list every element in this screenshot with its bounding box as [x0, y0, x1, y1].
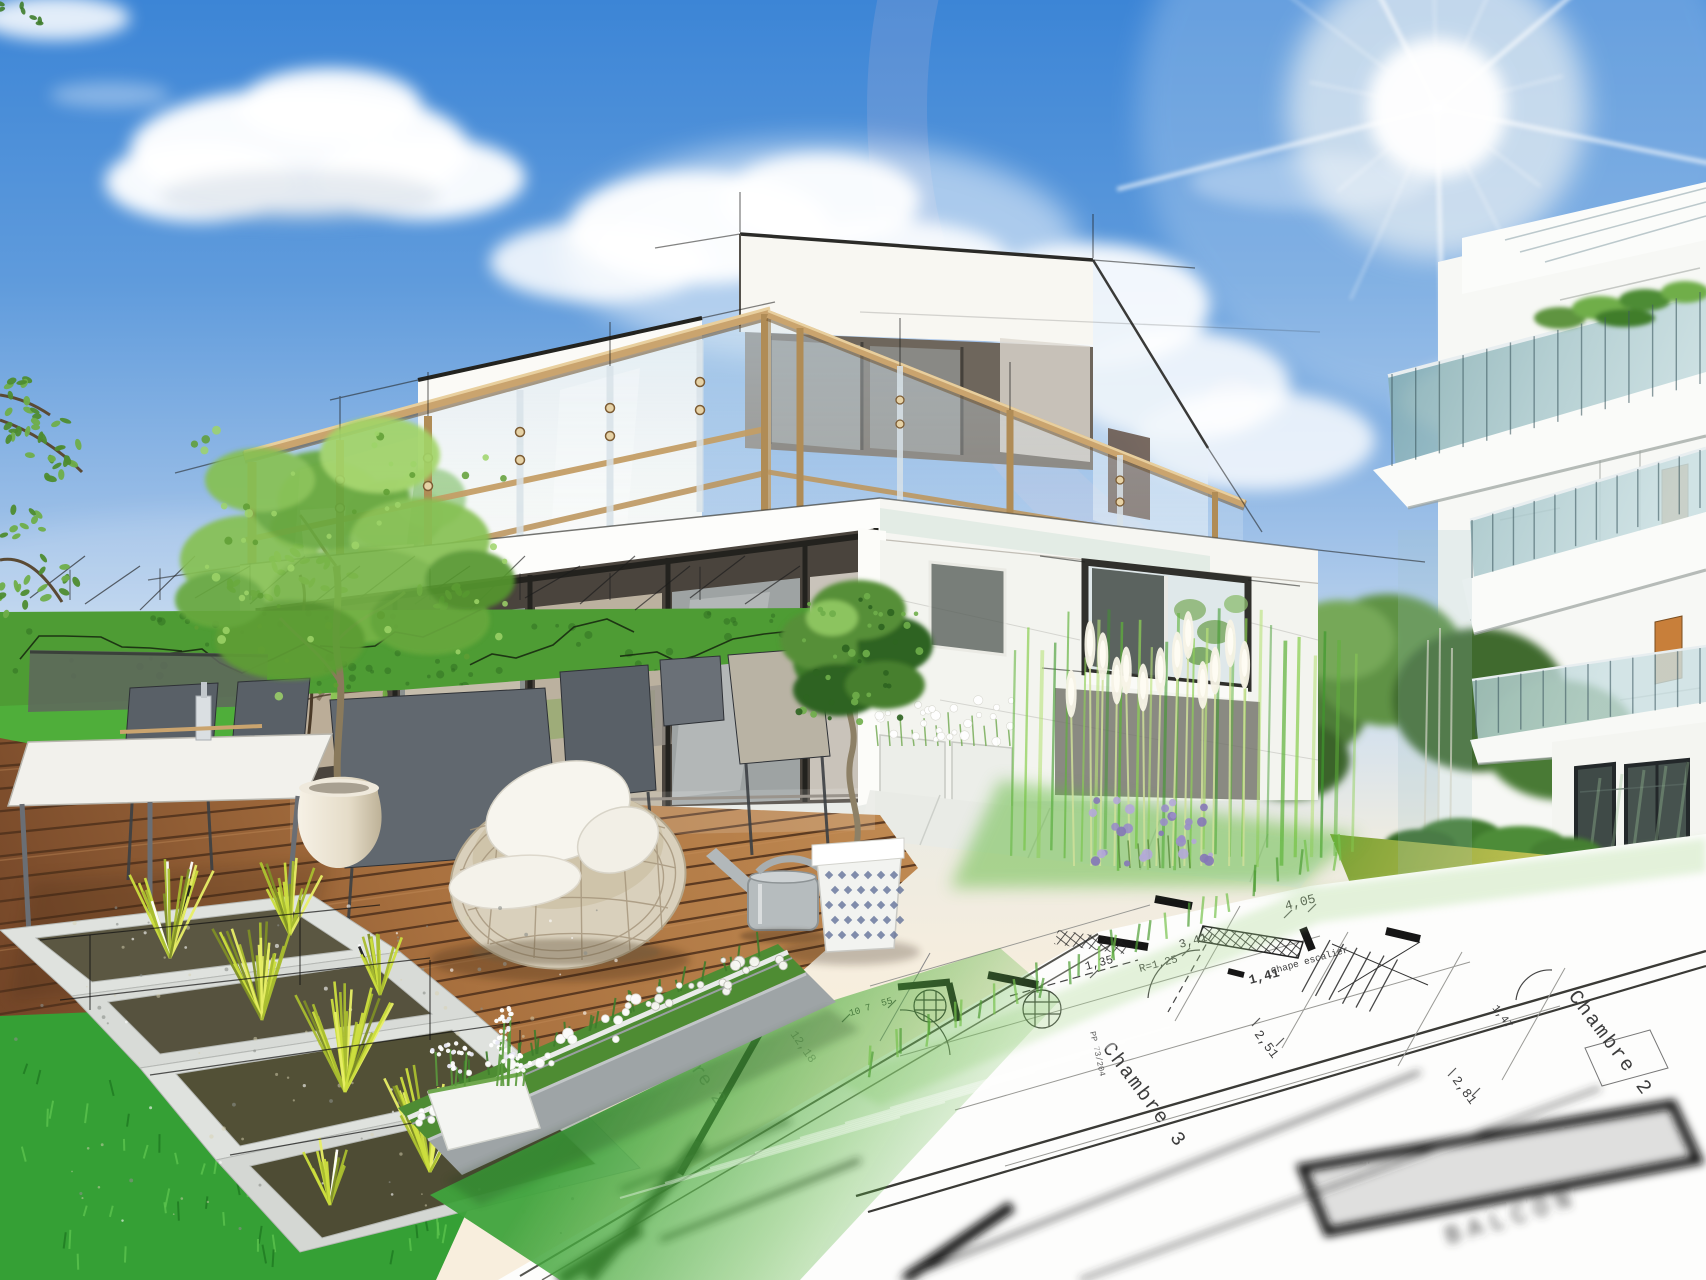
ghost-window: [930, 562, 1005, 655]
dining-table-top: [8, 734, 332, 806]
ghost-glass-overlay: [1398, 530, 1472, 896]
patterned-pot: [812, 838, 904, 952]
architectural-render-image: Chambre 2 Chambre 3 Chambre 2 Chape esca…: [0, 0, 1706, 1280]
scene-canvas: Chambre 2 Chambre 3 Chambre 2 Chape esca…: [0, 0, 1706, 1280]
